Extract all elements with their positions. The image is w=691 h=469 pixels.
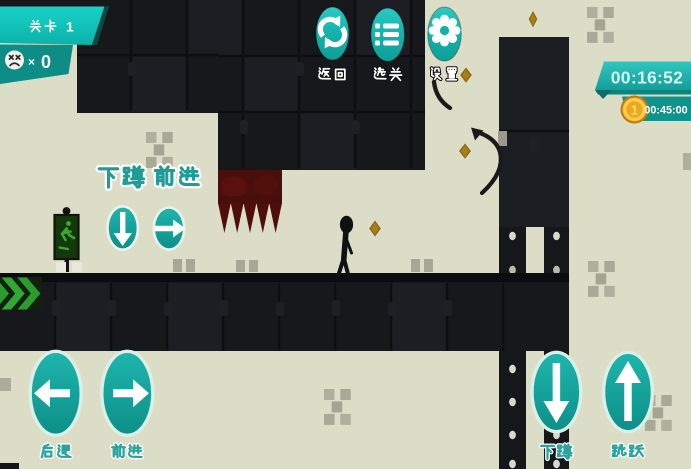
svg-text:×: × <box>28 55 35 69</box>
svg-text:1: 1 <box>631 103 638 118</box>
svg-text:1: 1 <box>66 19 74 35</box>
svg-text:00:45:00: 00:45:00 <box>644 105 687 117</box>
svg-text:0: 0 <box>41 52 51 72</box>
svg-text:00:16:52: 00:16:52 <box>611 68 683 88</box>
